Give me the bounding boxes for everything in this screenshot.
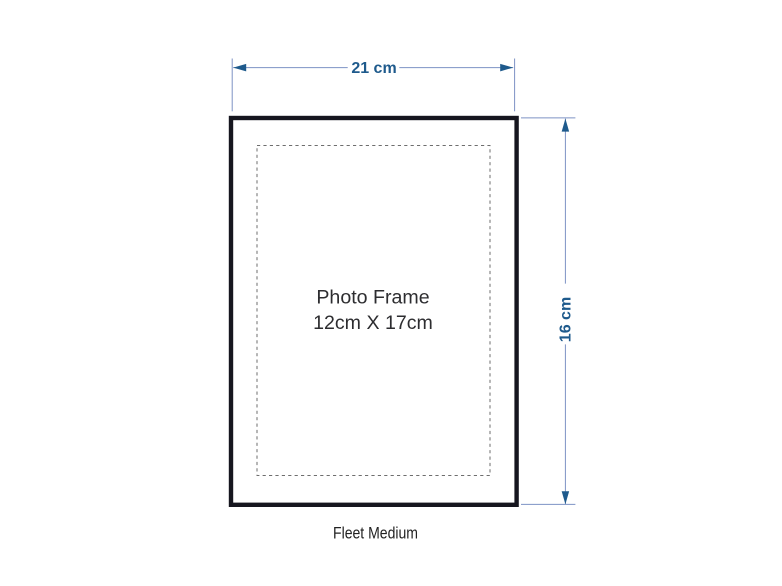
svg-text:16 cm: 16 cm — [558, 297, 575, 342]
svg-text:Photo Frame: Photo Frame — [316, 287, 429, 309]
svg-text:12cm X 17cm: 12cm X 17cm — [313, 312, 433, 334]
svg-text:21 cm: 21 cm — [351, 60, 396, 77]
svg-text:Fleet Medium: Fleet Medium — [333, 525, 418, 543]
